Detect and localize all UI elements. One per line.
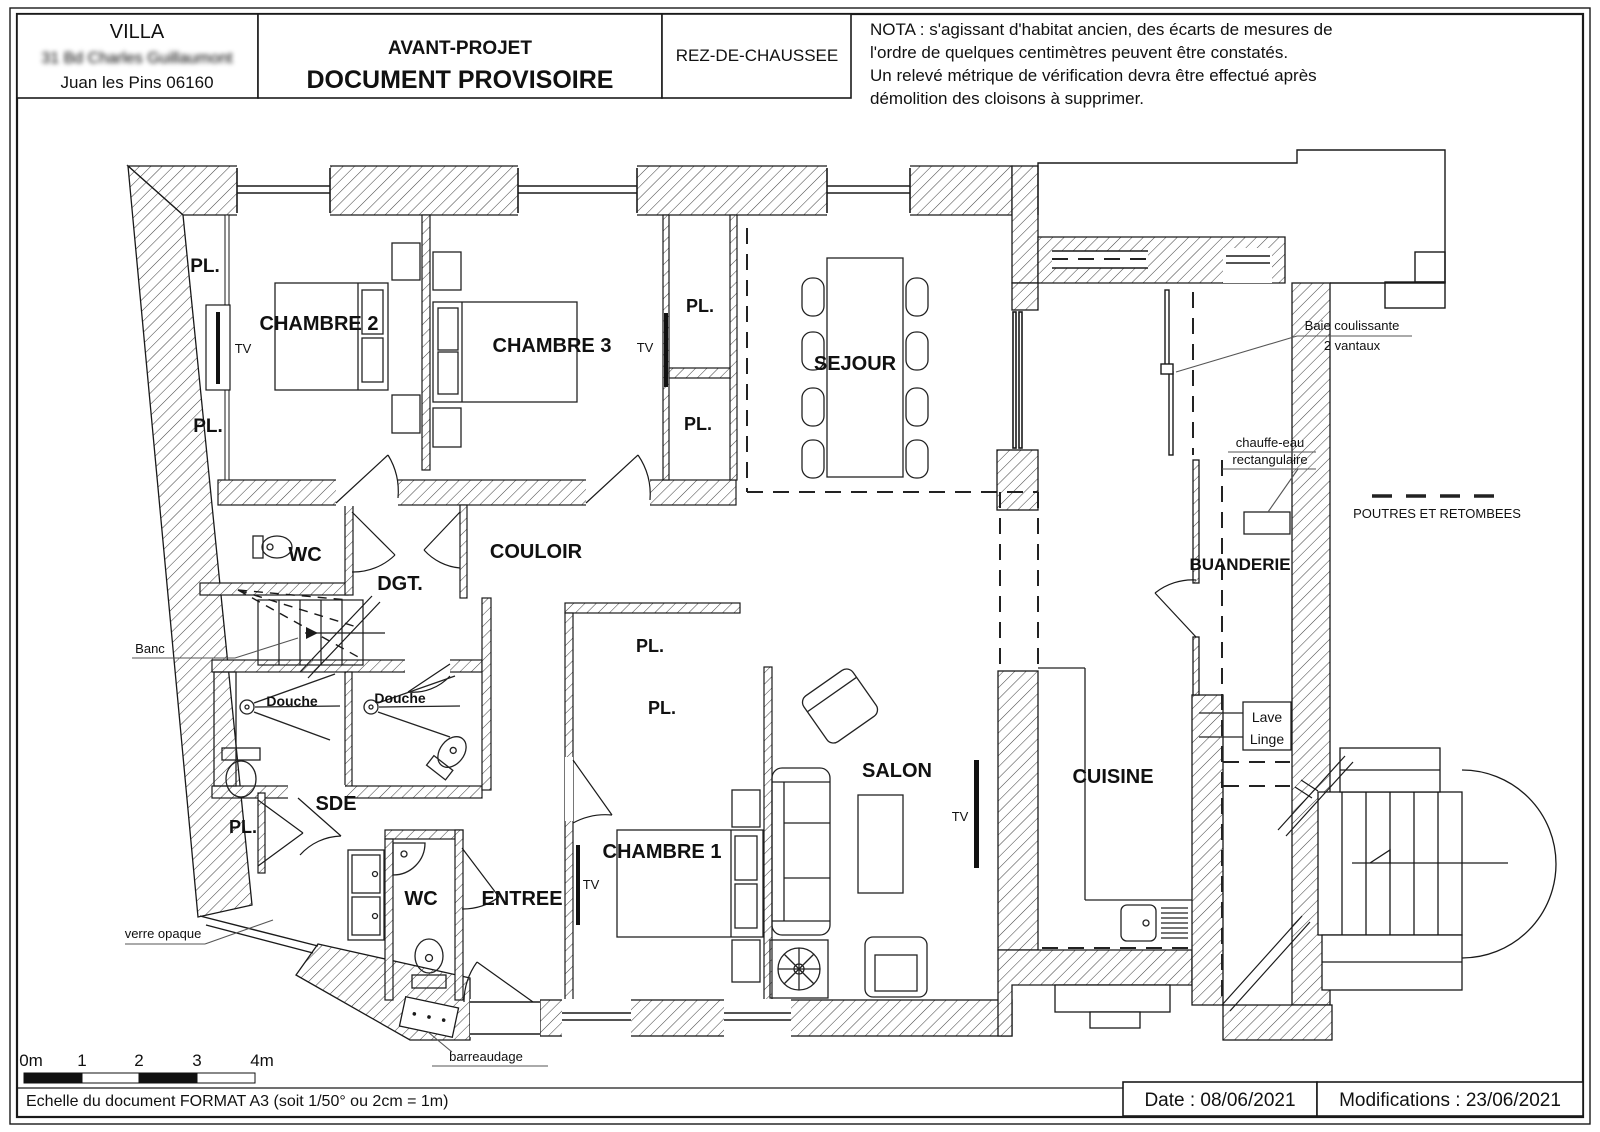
- scale-caption: Echelle du document FORMAT A3 (soit 1/50…: [26, 1093, 448, 1110]
- wall-pl-sejour: [730, 215, 737, 480]
- villa-city: Juan les Pins 06160: [60, 73, 213, 92]
- label-chambre3: CHAMBRE 3: [493, 335, 612, 357]
- tv-chambre1: [576, 845, 580, 925]
- wall-salon-cuisine: [998, 671, 1038, 950]
- svg-text:l'ordre de quelques centimètre: l'ordre de quelques centimètres peuvent …: [870, 43, 1288, 62]
- nota-text: NOTA : s'agissant d'habitat ancien, des …: [870, 20, 1333, 108]
- label-chauffe-1: chauffe-eau: [1236, 435, 1304, 450]
- label-pl-topleft-1: PL.: [190, 256, 220, 277]
- scale-tick-0: 0m: [19, 1051, 43, 1070]
- wall-left-slanted: [128, 166, 252, 917]
- label-lave: Lave: [1252, 709, 1283, 725]
- tv-chambre3: [664, 313, 668, 387]
- wall-chambre2-chambre3: [422, 215, 430, 470]
- label-tv-chambre2: TV: [235, 341, 252, 356]
- footer-dates: Date : 08/06/2021 Modifications : 23/06/…: [1123, 1082, 1583, 1116]
- scale-tick-3: 3: [192, 1051, 201, 1070]
- label-buanderie: BUANDERIE: [1189, 555, 1290, 574]
- label-pl-mid-2: PL.: [684, 414, 712, 434]
- label-tv-salon: TV: [952, 809, 969, 824]
- wall-chambre1-salon: [764, 667, 772, 1003]
- wall-wc-bottom-left: [385, 839, 393, 1000]
- exterior-step-2: [1090, 1012, 1140, 1028]
- label-chambre2: CHAMBRE 2: [260, 313, 379, 335]
- stairs-interior: [238, 590, 385, 678]
- label-wc-top: WC: [288, 544, 321, 566]
- svg-text:NOTA : s'agissant d'habitat an: NOTA : s'agissant d'habitat ancien, des …: [870, 20, 1333, 39]
- floor-plan-svg: VILLA 31 Bd Charles Guillaumont Juan les…: [0, 0, 1600, 1132]
- water-heater: [1244, 512, 1290, 534]
- kitchen-grate: [1161, 908, 1188, 938]
- wall-topright-step: [1012, 166, 1038, 283]
- coffee-table-salon: [858, 795, 903, 893]
- label-banc: Banc: [135, 641, 165, 656]
- nightstand-chambre2-a: [392, 243, 420, 280]
- kitchen-sink: [1121, 905, 1156, 941]
- label-sejour: SEJOUR: [814, 353, 897, 375]
- corner-sink-wc-bottom: [393, 843, 425, 875]
- label-verre-opaque: verre opaque: [125, 926, 202, 941]
- toilet-wc-top: [253, 536, 292, 558]
- label-dgt: DGT.: [377, 573, 423, 595]
- door-dgt: [424, 512, 460, 568]
- wall-buanderie-left-b: [1193, 637, 1199, 695]
- svg-text:Un relevé métrique de vérifica: Un relevé métrique de vérification devra…: [870, 66, 1317, 85]
- exterior-step-1: [1055, 985, 1170, 1012]
- sofa-salon: [772, 768, 830, 935]
- svg-text:démolition des cloisons à supp: démolition des cloisons à supprimer.: [870, 89, 1144, 108]
- villa-title: VILLA: [110, 21, 165, 43]
- label-couloir: COULOIR: [490, 541, 583, 563]
- shower-head-2: [364, 676, 460, 737]
- label-tv-chambre3: TV: [637, 340, 654, 355]
- tv-salon: [974, 760, 979, 868]
- armchair-salon-top: [799, 666, 880, 746]
- scale-bar: 0m 1 2 3 4m Echelle du document FORMAT A…: [18, 1051, 1123, 1110]
- door-wc-top: [352, 512, 395, 572]
- annex-outline: [1038, 150, 1445, 308]
- level-title: REZ-DE-CHAUSSEE: [676, 46, 838, 65]
- wall-wc-bottom-top: [385, 830, 463, 839]
- label-pl-ch1-1: PL.: [636, 636, 664, 656]
- date-text: Date : 08/06/2021: [1144, 1090, 1295, 1111]
- nightstand-chambre1-b: [732, 940, 760, 982]
- villa-address-blurred: 31 Bd Charles Guillaumont: [41, 50, 233, 67]
- project-line1: AVANT-PROJET: [388, 38, 532, 59]
- glazing-verre-opaque: [200, 916, 318, 953]
- wall-pl-mid-divider: [669, 368, 730, 378]
- wall-couloir-pl1: [565, 603, 740, 613]
- wall-buanderie-bottom: [1223, 1005, 1332, 1040]
- title-block: VILLA 31 Bd Charles Guillaumont Juan les…: [17, 14, 1333, 108]
- label-cuisine: CUISINE: [1072, 766, 1153, 788]
- stairs-direction-arrow: [305, 627, 385, 639]
- label-chambre1: CHAMBRE 1: [603, 841, 722, 863]
- label-baie-1: Baie coulissante: [1305, 318, 1400, 333]
- label-linge: Linge: [1250, 731, 1284, 747]
- label-barreaudage: barreaudage: [449, 1049, 523, 1064]
- door-buanderie: [1155, 580, 1196, 637]
- drawing-sheet: VILLA 31 Bd Charles Guillaumont Juan les…: [0, 0, 1600, 1132]
- label-pl-ch1-2: PL.: [648, 698, 676, 718]
- door-chambre1: [573, 760, 612, 823]
- toilet-douche2: [427, 731, 472, 780]
- tv-niche-chambre2: [206, 215, 230, 480]
- label-baie-2: 2 vantaux: [1324, 338, 1381, 353]
- nightstand-chambre3-a: [433, 252, 461, 290]
- wall-douche-divider: [345, 672, 352, 788]
- wall-dgt-couloir: [460, 505, 467, 598]
- label-tv-chambre1: TV: [583, 877, 600, 892]
- label-pl-sde: PL.: [229, 817, 257, 837]
- label-douche-2: Douche: [374, 690, 426, 706]
- nightstand-chambre3-b: [433, 408, 461, 447]
- label-salon: SALON: [862, 760, 932, 782]
- label-wc-bottom: WC: [404, 888, 437, 910]
- vanity-sde: [348, 850, 384, 940]
- wall-corridor-left: [482, 598, 491, 790]
- bed-chambre2: [275, 283, 388, 390]
- scale-tick-2: 2: [134, 1051, 143, 1070]
- nightstand-chambre1-a: [732, 790, 760, 827]
- label-pl-mid-1: PL.: [686, 296, 714, 316]
- wall-wc-bottom-right: [455, 830, 463, 1000]
- wall-sejour-right-stub: [1012, 283, 1038, 310]
- kitchen-counter: [1038, 668, 1192, 941]
- project-line2: DOCUMENT PROVISOIRE: [307, 66, 614, 94]
- window-sejour-right: [1013, 312, 1022, 448]
- scale-tick-1: 1: [77, 1051, 86, 1070]
- label-sde: SDE: [315, 793, 356, 815]
- wall-sejour-right-corner: [997, 450, 1038, 510]
- fixtures: [214, 536, 472, 988]
- label-entree: ENTREE: [481, 888, 562, 910]
- scale-tick-4: 4m: [250, 1051, 274, 1070]
- nightstand-chambre2-b: [392, 395, 420, 433]
- wall-wc-top-right: [345, 505, 353, 595]
- label-chauffe-2: rectangulaire: [1232, 452, 1307, 467]
- baie-coulissante: [1161, 290, 1173, 455]
- wall-cuisine-buanderie: [1192, 695, 1223, 1005]
- armchair-salon-bottom: [865, 937, 927, 997]
- label-pl-topleft-2: PL.: [193, 416, 223, 437]
- side-table-fan: [770, 940, 828, 998]
- label-douche-1: Douche: [266, 693, 318, 709]
- modifications-text: Modifications : 23/06/2021: [1339, 1090, 1561, 1111]
- tv-chambre2: [216, 312, 220, 384]
- wall-chambres-couloir: [218, 480, 736, 505]
- label-poutres: POUTRES ET RETOMBEES: [1353, 506, 1521, 521]
